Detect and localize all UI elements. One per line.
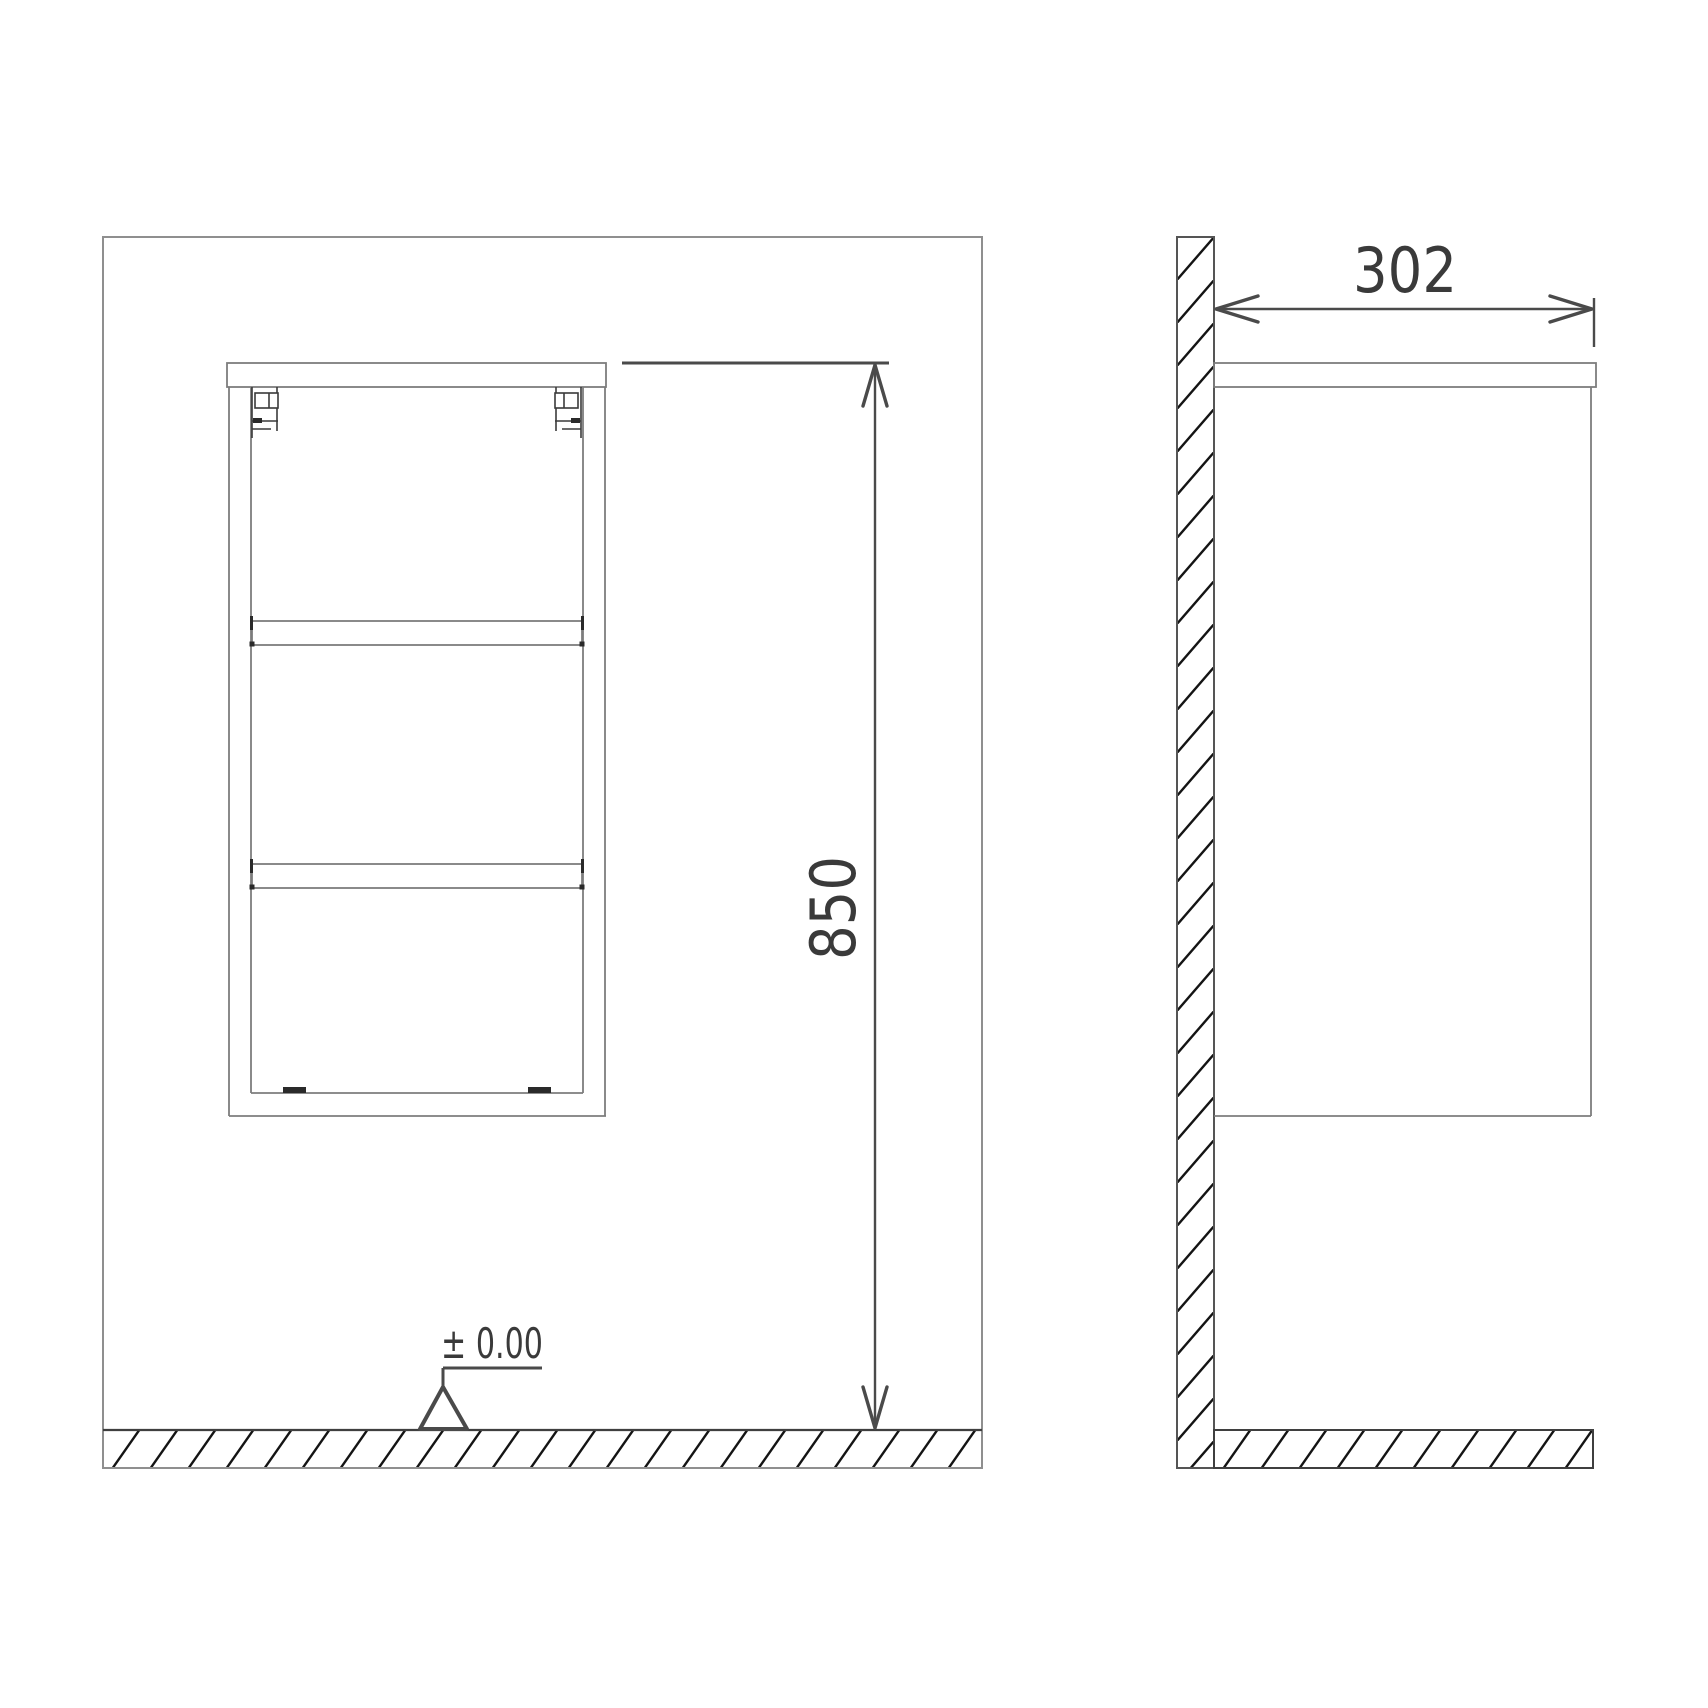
hanger-bracket-right xyxy=(555,387,581,438)
shelf-1 xyxy=(250,616,585,647)
dimension-302-label: 302 xyxy=(1353,234,1457,307)
floor-hatch-front xyxy=(104,1430,981,1467)
datum-triangle-icon xyxy=(420,1387,467,1429)
datum-symbol: ± 0.00 xyxy=(420,1319,543,1429)
datum-label: ± 0.00 xyxy=(441,1319,543,1368)
side-view: 302 xyxy=(1177,234,1596,1468)
shelf-1-board xyxy=(252,621,582,645)
cabinet-front xyxy=(227,363,606,1116)
shelf-2-board xyxy=(252,864,582,888)
floor-hatch-side xyxy=(1214,1430,1593,1468)
front-elevation-view: 850 ± 0.00 xyxy=(103,237,982,1468)
cabinet-top-panel-front xyxy=(227,363,606,387)
wall-section-hatch xyxy=(1177,237,1214,1468)
technical-drawing-canvas: 850 ± 0.00 302 xyxy=(0,0,1708,1708)
technical-drawing-page: 850 ± 0.00 302 xyxy=(0,0,1708,1708)
cabinet-side xyxy=(1214,363,1596,1116)
shelf-2 xyxy=(250,859,585,890)
bottom-connector-left xyxy=(283,1087,306,1093)
hanger-bracket-left xyxy=(252,387,278,438)
wall-outline-front xyxy=(103,237,982,1468)
dimension-850-label: 850 xyxy=(797,856,870,960)
dimension-850: 850 xyxy=(622,363,889,1428)
bottom-connector-right xyxy=(528,1087,551,1093)
dimension-302: 302 xyxy=(1216,234,1594,347)
cabinet-top-panel-side xyxy=(1214,363,1596,387)
